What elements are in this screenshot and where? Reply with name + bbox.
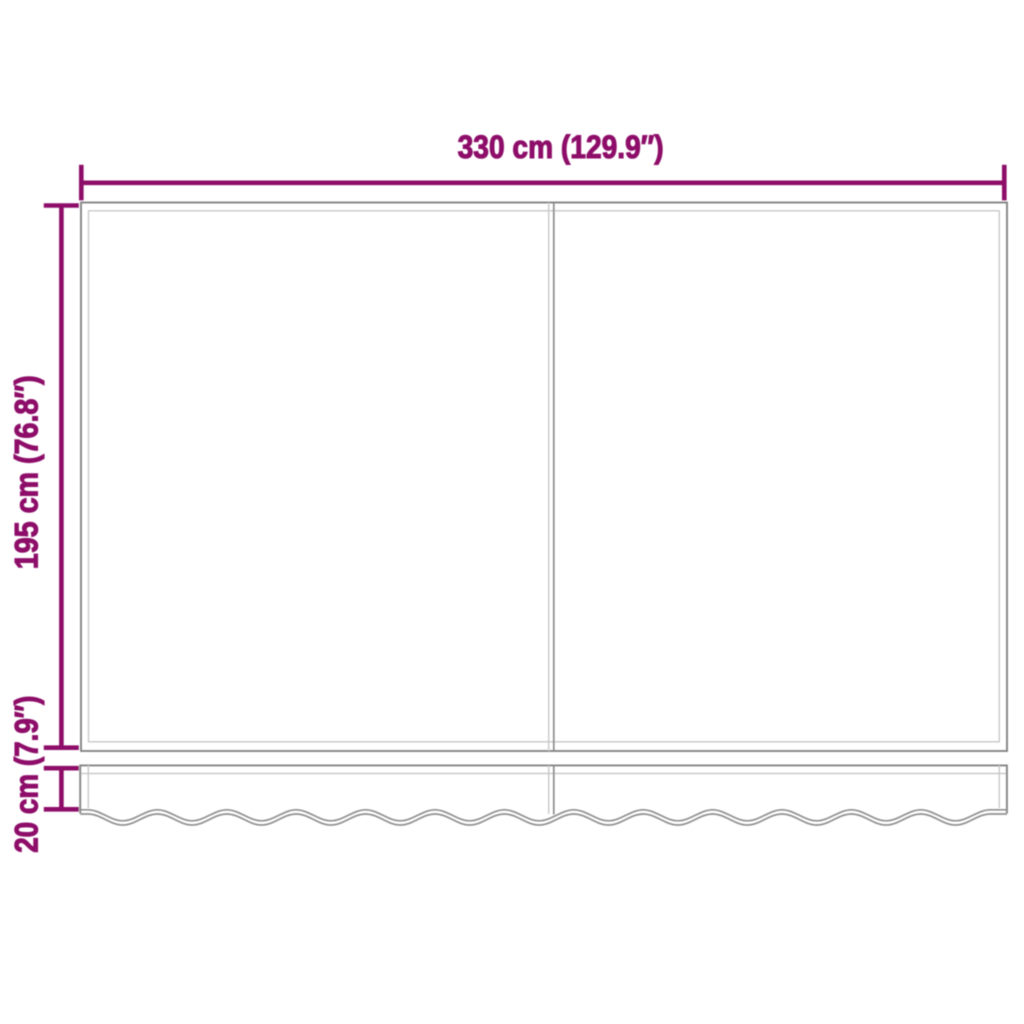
svg-text:195 cm (76.8″): 195 cm (76.8″) [9,375,45,569]
svg-text:20 cm (7.9″): 20 cm (7.9″) [10,696,45,853]
svg-text:330 cm (129.9″): 330 cm (129.9″) [458,130,664,165]
